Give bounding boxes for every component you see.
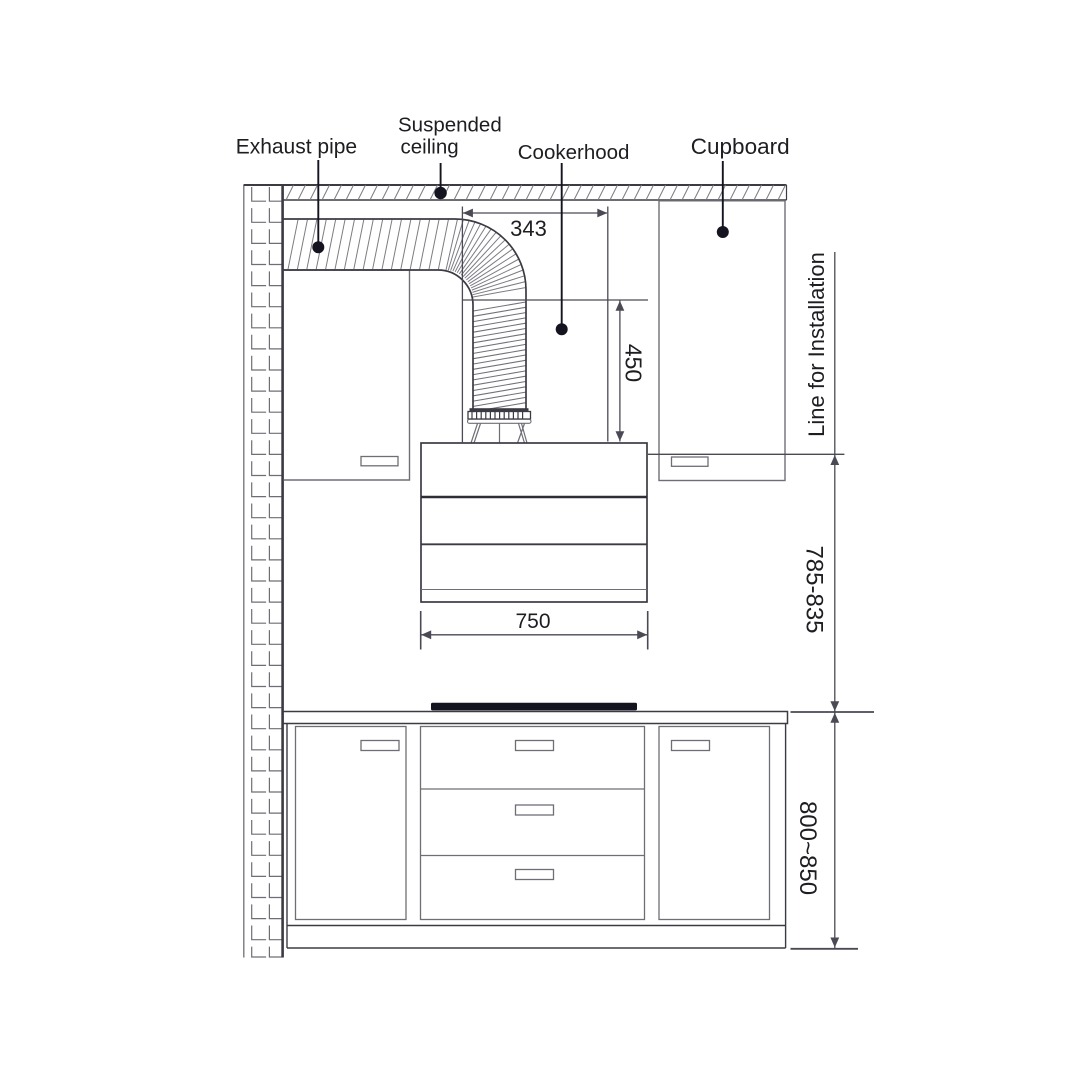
svg-text:Suspended: Suspended bbox=[398, 114, 502, 137]
svg-text:Cupboard: Cupboard bbox=[691, 134, 790, 159]
svg-text:450: 450 bbox=[621, 344, 647, 382]
svg-text:Exhaust pipe: Exhaust pipe bbox=[236, 136, 357, 159]
svg-text:800~850: 800~850 bbox=[794, 801, 821, 895]
svg-text:ceiling: ceiling bbox=[401, 136, 459, 159]
svg-text:Cookerhood: Cookerhood bbox=[518, 141, 630, 164]
svg-text:343: 343 bbox=[510, 216, 547, 241]
svg-text:785-835: 785-835 bbox=[801, 545, 828, 633]
svg-text:Line for Installation: Line for Installation bbox=[804, 252, 829, 437]
svg-text:750: 750 bbox=[515, 610, 550, 633]
